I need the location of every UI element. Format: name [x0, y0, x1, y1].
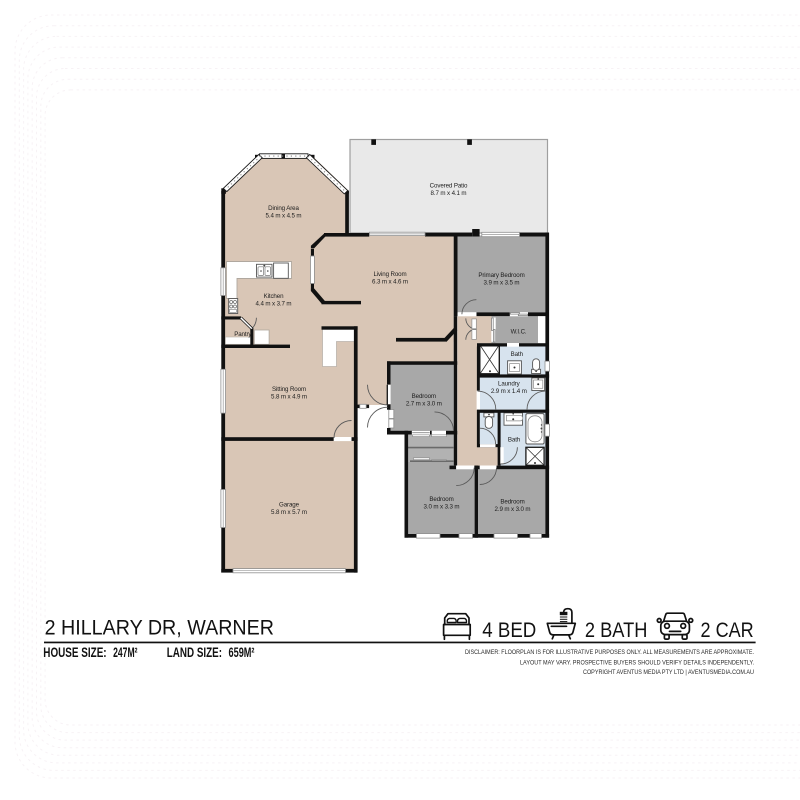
svg-text:Covered Patio: Covered Patio: [430, 182, 468, 189]
svg-text:Living Room: Living Room: [373, 271, 406, 278]
svg-text:LAYOUT MAY VARY. PROSPECTIVE B: LAYOUT MAY VARY. PROSPECTIVE BUYERS SHOU…: [520, 660, 754, 667]
svg-text:2 HILLARY DR, WARNER: 2 HILLARY DR, WARNER: [45, 615, 274, 639]
svg-text:3.9 m x 3.5 m: 3.9 m x 3.5 m: [484, 280, 520, 287]
svg-text:4 BED: 4 BED: [482, 618, 536, 642]
svg-text:247M²: 247M²: [113, 645, 138, 660]
svg-text:2 CAR: 2 CAR: [701, 618, 754, 642]
svg-text:2.7 m x 3.0 m: 2.7 m x 3.0 m: [406, 401, 442, 408]
svg-text:HOUSE SIZE:: HOUSE SIZE:: [43, 645, 106, 660]
svg-text:8.7 m x 4.1 m: 8.7 m x 4.1 m: [431, 190, 467, 197]
svg-text:2 BATH: 2 BATH: [585, 618, 648, 642]
svg-text:W.I.C.: W.I.C.: [511, 329, 527, 336]
svg-text:Garage: Garage: [279, 501, 300, 508]
svg-text:Bath: Bath: [508, 437, 521, 444]
svg-text:Bedroom: Bedroom: [412, 393, 436, 400]
svg-text:Bedroom: Bedroom: [429, 496, 453, 503]
svg-text:Pantry: Pantry: [234, 331, 252, 338]
svg-text:Laundry: Laundry: [498, 381, 521, 388]
svg-text:Kitchen: Kitchen: [264, 293, 284, 300]
svg-text:6.3 m x 4.6 m: 6.3 m x 4.6 m: [372, 279, 408, 286]
svg-text:Sitting Room: Sitting Room: [272, 386, 306, 393]
svg-text:4.4 m x 3.7 m: 4.4 m x 3.7 m: [256, 301, 292, 308]
svg-text:2.9 m x 3.0 m: 2.9 m x 3.0 m: [495, 506, 531, 513]
svg-text:659M²: 659M²: [229, 645, 255, 660]
svg-text:Dining Area: Dining Area: [268, 205, 299, 212]
svg-text:Bath: Bath: [511, 351, 524, 358]
svg-text:Primary Bedroom: Primary Bedroom: [478, 272, 524, 279]
svg-text:LAND SIZE:: LAND SIZE:: [167, 645, 222, 660]
svg-text:3.0 m x 3.3 m: 3.0 m x 3.3 m: [424, 503, 460, 510]
svg-text:5.4 m x 4.5 m: 5.4 m x 4.5 m: [266, 212, 302, 219]
svg-text:Bedroom: Bedroom: [500, 498, 524, 505]
svg-text:DISCLAIMER: FLOORPLAN IS FOR I: DISCLAIMER: FLOORPLAN IS FOR ILLUSTRATIV…: [465, 649, 754, 656]
svg-text:COPYRIGHT AVENTUS MEDIA PTY LT: COPYRIGHT AVENTUS MEDIA PTY LTD | AVENTU…: [583, 669, 754, 676]
svg-text:5.8 m x 5.7 m: 5.8 m x 5.7 m: [271, 509, 307, 516]
svg-text:5.8 m x 4.9 m: 5.8 m x 4.9 m: [271, 394, 307, 401]
svg-text:2.9 m x 1.4 m: 2.9 m x 1.4 m: [491, 388, 527, 395]
